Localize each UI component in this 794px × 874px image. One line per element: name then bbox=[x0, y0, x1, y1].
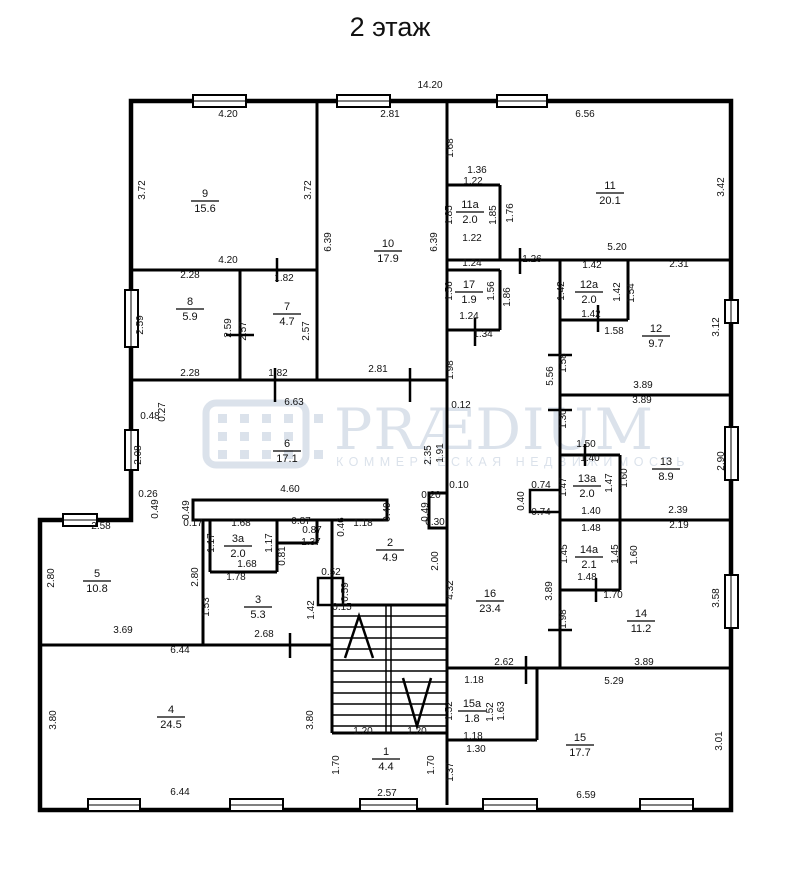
dimension-label: 2.57 bbox=[301, 321, 312, 341]
dimension-label: 3.80 bbox=[305, 710, 316, 730]
dimension-label: 0.87 bbox=[302, 525, 322, 536]
dimension-label: 2.28 bbox=[180, 368, 200, 379]
dimension-label: 2.68 bbox=[254, 629, 274, 640]
dimension-label: 5.29 bbox=[604, 676, 624, 687]
dimension-label: 4.20 bbox=[218, 255, 238, 266]
dimension-label: 2.59 bbox=[135, 315, 146, 335]
room-number: 13 bbox=[660, 456, 672, 468]
dimension-label: 1.45 bbox=[559, 544, 570, 564]
dimension-label: 6.56 bbox=[575, 109, 595, 120]
room-area: 10.8 bbox=[86, 583, 107, 595]
room-number: 5 bbox=[94, 568, 100, 580]
room-number: 3a bbox=[232, 533, 245, 545]
dimension-label: 1.98 bbox=[558, 609, 569, 629]
dimension-label: 3.12 bbox=[711, 317, 722, 337]
dimension-label: 2.59 bbox=[223, 318, 234, 338]
dimension-label: 2.39 bbox=[668, 505, 688, 516]
dimension-label: 4.60 bbox=[280, 484, 300, 495]
dimension-label: 0.15 bbox=[332, 602, 352, 613]
dimension-label: 1.85 bbox=[444, 205, 455, 225]
dimension-label: 1.56 bbox=[486, 281, 497, 301]
room-label-12a: 12a2.0 bbox=[575, 279, 603, 306]
room-area: 15.6 bbox=[194, 203, 215, 215]
dimension-label: 4.20 bbox=[218, 109, 238, 120]
dimension-label: 1.58 bbox=[558, 353, 569, 373]
room-number: 15a bbox=[463, 698, 482, 710]
room-area: 23.4 bbox=[479, 603, 500, 615]
dimension-label: 1.56 bbox=[444, 281, 455, 301]
dimension-label: 3.69 bbox=[113, 625, 133, 636]
room-area: 11.2 bbox=[631, 623, 652, 635]
dimension-label: 1.37 bbox=[445, 762, 456, 782]
room-area: 4.4 bbox=[378, 761, 393, 773]
room-label-4: 424.5 bbox=[157, 704, 185, 731]
room-label-16: 1623.4 bbox=[476, 588, 504, 615]
dimension-label: 6.63 bbox=[284, 397, 304, 408]
watermark-brand: PRÆDIUM bbox=[334, 397, 654, 463]
room-area: 17.9 bbox=[377, 253, 398, 265]
room-number: 7 bbox=[284, 301, 290, 313]
dimension-label: 2.62 bbox=[494, 657, 514, 668]
dimension-label: 6.44 bbox=[170, 787, 190, 798]
room-number: 10 bbox=[382, 238, 394, 250]
dimension-label: 1.91 bbox=[435, 443, 446, 463]
dimension-label: 2.90 bbox=[716, 451, 727, 471]
dimension-label: 0.49 bbox=[150, 499, 161, 519]
dimension-label: 4.32 bbox=[445, 580, 456, 600]
dimension-label: 3.80 bbox=[48, 710, 59, 730]
dimension-label: 1.86 bbox=[502, 287, 513, 307]
room-label-8: 85.9 bbox=[176, 296, 204, 323]
dimension-label: 1.26 bbox=[522, 254, 542, 265]
dimension-label: 2.19 bbox=[669, 520, 689, 531]
dimension-label: 5.20 bbox=[607, 242, 627, 253]
dimension-label: 2.58 bbox=[91, 521, 111, 532]
dimension-label: 1.48 bbox=[581, 523, 601, 534]
dimension-label: 0.26 bbox=[138, 489, 158, 500]
room-number: 4 bbox=[168, 704, 174, 716]
dimension-label: 0.10 bbox=[449, 480, 469, 491]
room-area: 1.8 bbox=[464, 713, 479, 725]
dimension-label: 6.39 bbox=[429, 232, 440, 252]
dimension-label: 0.49 bbox=[181, 500, 192, 520]
dimension-label: 1.20 bbox=[407, 726, 427, 737]
watermark-subtitle: КОММЕРЧЕСКАЯ НЕДВИЖИМОСТЬ bbox=[336, 455, 690, 469]
dimension-label: 3.01 bbox=[714, 731, 725, 751]
room-area: 2.0 bbox=[579, 488, 594, 500]
room-area: 20.1 bbox=[599, 195, 620, 207]
room-number: 8 bbox=[187, 296, 193, 308]
room-number: 11a bbox=[461, 199, 479, 211]
dimension-label: 1.42 bbox=[612, 282, 623, 302]
dimension-label: 1.42 bbox=[581, 309, 601, 320]
dimension-label: 5.56 bbox=[545, 366, 556, 386]
floor-plan: 2 этаж PRÆDIUM КОММЕРЧЕСКАЯ НЕДВИЖИМОСТЬ bbox=[0, 0, 794, 874]
dimension-label: 6.44 bbox=[170, 645, 190, 656]
room-area: 17.1 bbox=[276, 453, 297, 465]
dimension-label: 0.49 bbox=[382, 502, 393, 522]
room-area: 4.9 bbox=[382, 552, 397, 564]
dimension-label: 0.20 bbox=[421, 490, 441, 501]
room-area: 5.3 bbox=[250, 609, 265, 621]
room-area: 2.1 bbox=[581, 559, 596, 571]
dimension-label: 1.68 bbox=[237, 559, 257, 570]
dimension-label: 1.18 bbox=[463, 731, 483, 742]
dimension-label: 3.58 bbox=[711, 588, 722, 608]
dimension-label: 2.00 bbox=[430, 551, 441, 571]
dimension-label: 1.60 bbox=[629, 545, 640, 565]
room-number: 2 bbox=[387, 537, 393, 549]
dimension-label: 1.40 bbox=[580, 453, 600, 464]
dimension-label: 1.22 bbox=[462, 233, 482, 244]
dimension-label: 1.45 bbox=[610, 544, 621, 564]
dimension-label: 0.30 bbox=[425, 517, 445, 528]
dimension-label: 1.24 bbox=[462, 258, 482, 269]
dimension-label: 1.30 bbox=[466, 744, 486, 755]
dimension-label: 1.98 bbox=[445, 360, 456, 380]
dimension-label: 3.89 bbox=[544, 581, 555, 601]
dimension-label: 6.39 bbox=[323, 232, 334, 252]
room-number: 14a bbox=[580, 544, 599, 556]
room-label-11a: 11a2.0 bbox=[456, 199, 484, 226]
dimension-label: 0.59 bbox=[340, 582, 351, 602]
dimension-label: 3.72 bbox=[303, 180, 314, 200]
room-area: 24.5 bbox=[160, 719, 181, 731]
dimension-label: 1.36 bbox=[467, 165, 487, 176]
dimension-label: 14.20 bbox=[417, 80, 442, 91]
room-number: 3 bbox=[255, 594, 261, 606]
dimension-label: 1.70 bbox=[603, 590, 623, 601]
dimension-label: 1.70 bbox=[426, 755, 437, 775]
room-number: 15 bbox=[574, 732, 586, 744]
room-label-12: 129.7 bbox=[642, 323, 670, 350]
dimension-label: 0.74 bbox=[531, 507, 551, 518]
dimension-label: 1.68 bbox=[445, 138, 456, 158]
dimension-label: 0.17 bbox=[183, 518, 203, 529]
dimension-label: 1.30 bbox=[558, 409, 569, 429]
dimension-label: 3.89 bbox=[634, 657, 654, 668]
dimension-label: 3.89 bbox=[632, 395, 652, 406]
dimension-label: 0.40 bbox=[516, 491, 527, 511]
room-number: 11 bbox=[604, 180, 615, 192]
dimension-label: 1.48 bbox=[577, 572, 597, 583]
stairs-down-arrow bbox=[403, 678, 431, 726]
room-area: 17.7 bbox=[569, 747, 590, 759]
dimension-label: 2.80 bbox=[190, 567, 201, 587]
dimension-label: 0.12 bbox=[451, 400, 471, 411]
room-area: 2.0 bbox=[462, 214, 477, 226]
room-area: 4.7 bbox=[279, 316, 294, 328]
dimension-label: 1.47 bbox=[558, 477, 569, 497]
room-label-15a: 15a1.8 bbox=[458, 698, 486, 725]
room-area: 9.7 bbox=[648, 338, 663, 350]
dimension-label: 1.18 bbox=[353, 518, 373, 529]
dimension-label: 2.31 bbox=[669, 259, 689, 270]
stairs-up-arrow bbox=[345, 616, 373, 658]
room-number: 6 bbox=[284, 438, 290, 450]
dimension-label: 0.27 bbox=[157, 402, 168, 422]
dimension-label: 1.42 bbox=[582, 260, 602, 271]
dimension-label: 2.80 bbox=[46, 568, 57, 588]
dimension-label: 1.53 bbox=[201, 597, 212, 617]
dimension-label: 0.74 bbox=[531, 480, 551, 491]
room-label-17: 171.9 bbox=[455, 279, 483, 306]
dimension-label: 0.46 bbox=[336, 517, 347, 537]
dimension-label: 2.81 bbox=[368, 364, 388, 375]
dimension-label: 6.59 bbox=[576, 790, 596, 801]
dimension-label: 1.85 bbox=[488, 205, 499, 225]
dimension-label: 1.40 bbox=[581, 506, 601, 517]
room-label-3a: 3a2.0 bbox=[224, 533, 252, 560]
room-label-15: 1517.7 bbox=[566, 732, 594, 759]
dimension-label: 1.54 bbox=[626, 283, 637, 303]
room-number: 12a bbox=[580, 279, 599, 291]
room-label-10: 1017.9 bbox=[374, 238, 402, 265]
room-label-11: 1120.1 bbox=[596, 180, 624, 207]
room-number: 17 bbox=[463, 279, 475, 291]
room-number: 9 bbox=[202, 188, 208, 200]
dimension-label: 1.20 bbox=[353, 726, 373, 737]
room-label-7: 74.7 bbox=[273, 301, 301, 328]
dimension-label: 1.70 bbox=[331, 755, 342, 775]
dimension-label: 0.81 bbox=[277, 546, 288, 566]
dimension-label: 1.52 bbox=[485, 702, 496, 722]
dimension-label: 3.72 bbox=[137, 180, 148, 200]
dimension-label: 1.76 bbox=[505, 203, 516, 223]
room-label-3: 35.3 bbox=[244, 594, 272, 621]
room-area: 8.9 bbox=[658, 471, 673, 483]
room-label-5: 510.8 bbox=[83, 568, 111, 595]
staircase bbox=[333, 605, 446, 733]
dimension-label: 1.18 bbox=[464, 675, 484, 686]
room-area: 5.9 bbox=[182, 311, 197, 323]
dimension-label: 1.82 bbox=[274, 273, 294, 284]
dimension-label: 2.57 bbox=[238, 321, 249, 341]
dimension-label: 1.68 bbox=[231, 518, 251, 529]
dimension-label: 0.52 bbox=[321, 567, 341, 578]
dimension-label: 1.50 bbox=[576, 439, 596, 450]
room-label-14a: 14a2.1 bbox=[575, 544, 603, 571]
room-area: 1.9 bbox=[461, 294, 476, 306]
dimension-label: 3.42 bbox=[716, 177, 727, 197]
room-label-9: 915.6 bbox=[191, 188, 219, 215]
floor-plan-page: 2 этаж PRÆDIUM КОММЕРЧЕСКАЯ НЕДВИЖИМОСТЬ bbox=[0, 0, 794, 874]
dimension-label: 1.78 bbox=[226, 572, 246, 583]
dimension-label: 3.89 bbox=[633, 380, 653, 391]
dimension-label: 1.42 bbox=[306, 600, 317, 620]
room-label-1: 14.4 bbox=[372, 746, 400, 773]
room-label-13a: 13a2.0 bbox=[573, 473, 601, 500]
room-label-2: 24.9 bbox=[376, 537, 404, 564]
built-in-cabinet bbox=[193, 500, 387, 520]
room-number: 1 bbox=[383, 746, 389, 758]
room-number: 14 bbox=[635, 608, 647, 620]
dimension-label: 1.58 bbox=[604, 326, 624, 337]
dimension-label: 1.52 bbox=[444, 701, 455, 721]
room-label-14: 1411.2 bbox=[627, 608, 655, 635]
room-area: 2.0 bbox=[581, 294, 596, 306]
dimension-label: 1.17 bbox=[264, 533, 275, 553]
room-label-6: 617.1 bbox=[273, 438, 301, 465]
dimension-label: 1.22 bbox=[463, 176, 483, 187]
room-number: 13a bbox=[578, 473, 597, 485]
dimension-label: 1.24 bbox=[459, 311, 479, 322]
dimension-label: 1.34 bbox=[473, 329, 493, 340]
dimension-label: 2.81 bbox=[380, 109, 400, 120]
dimension-label: 1.42 bbox=[556, 281, 567, 301]
dimension-label: 1.82 bbox=[268, 368, 288, 379]
dimension-label: 1.63 bbox=[496, 701, 507, 721]
dimension-label: 1.37 bbox=[301, 537, 321, 548]
stair-treads bbox=[333, 616, 446, 726]
dimension-label: 2.08 bbox=[133, 445, 144, 465]
room-number: 12 bbox=[650, 323, 662, 335]
dimension-label: 2.57 bbox=[377, 788, 397, 799]
page-title: 2 этаж bbox=[350, 12, 431, 42]
room-number: 16 bbox=[484, 588, 496, 600]
dimension-label: 2.28 bbox=[180, 270, 200, 281]
dimension-label: 1.17 bbox=[206, 533, 217, 553]
dimension-label: 1.47 bbox=[604, 473, 615, 493]
dimension-label: 1.60 bbox=[619, 468, 630, 488]
dimension-label: 2.35 bbox=[423, 445, 434, 465]
